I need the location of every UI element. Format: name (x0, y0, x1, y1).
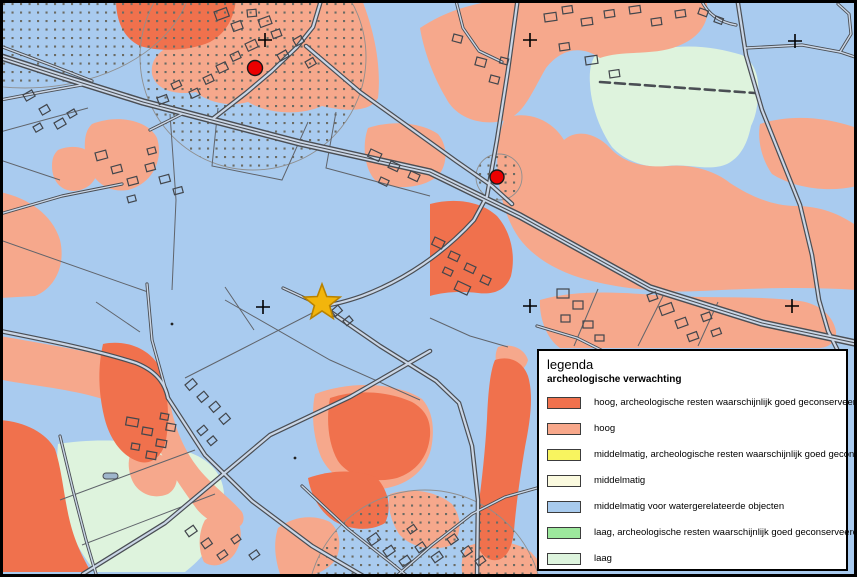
legend-item-label: laag (594, 553, 612, 565)
map-point-symbol (294, 457, 297, 460)
find-spot-marker[interactable] (490, 170, 504, 184)
legend-swatch-laag-geconserveerd (547, 527, 581, 539)
legend-swatch-hoog-geconserveerd (547, 397, 581, 409)
pond (103, 473, 118, 479)
legend-item-label: laag, archeologische resten waarschijnli… (594, 527, 857, 539)
legend-panel: legenda archeologische verwachting hoog,… (537, 349, 848, 571)
legend-item-label: middelmatig (594, 475, 645, 487)
legend-title: legenda (547, 356, 838, 373)
legend-item: laag (547, 546, 838, 572)
legend-item: hoog, archeologische resten waarschijnli… (547, 390, 838, 416)
find-spot-marker[interactable] (248, 61, 263, 76)
legend-item-label: middelmatig, archeologische resten waars… (594, 449, 857, 461)
legend-item: laag, archeologische resten waarschijnli… (547, 520, 838, 546)
legend-item: middelmatig, archeologische resten waars… (547, 442, 838, 468)
legend-swatch-laag (547, 553, 581, 565)
legend-item-label: middelmatig voor watergerelateerde objec… (594, 501, 784, 513)
legend-swatch-hoog (547, 423, 581, 435)
map-viewport: legenda archeologische verwachting hoog,… (0, 0, 857, 577)
legend-swatch-middelmatig (547, 475, 581, 487)
legend-item: hoog (547, 416, 838, 442)
legend-item: middelmatig voor watergerelateerde objec… (547, 494, 838, 520)
legend-subtitle: archeologische verwachting (547, 373, 838, 387)
legend-swatch-water (547, 501, 581, 513)
legend-item-label: hoog, archeologische resten waarschijnli… (594, 397, 857, 409)
map-point-symbol (171, 323, 174, 326)
legend-item: middelmatig (547, 468, 838, 494)
legend-swatch-middelmatig-geconserveerd (547, 449, 581, 461)
legend-item-label: hoog (594, 423, 615, 435)
